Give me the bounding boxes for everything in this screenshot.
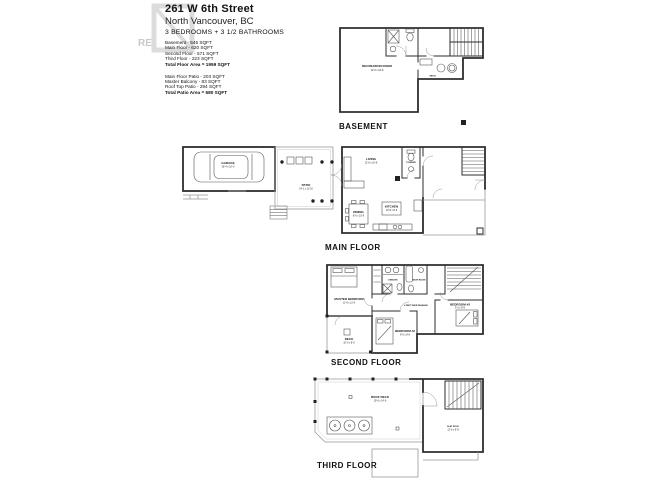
- sink: [390, 46, 396, 52]
- deck-post: [369, 351, 372, 354]
- bathtub: [406, 266, 413, 282]
- bed-crease: [459, 312, 470, 324]
- second-stairs: [447, 268, 481, 289]
- toilet: [408, 153, 414, 161]
- door-arc: [426, 48, 434, 56]
- flat-roof-dims: 12'-6 x 9'-8: [447, 430, 459, 432]
- master-label: MASTER BEDROOM: [334, 297, 364, 301]
- patio-dims: 14'-1 x 11'-10: [299, 189, 313, 191]
- patio-step-treads: [270, 210, 287, 216]
- patio-rail: [275, 147, 333, 209]
- rail-post: [372, 378, 375, 381]
- patio-chair: [287, 157, 294, 164]
- rail-post: [349, 378, 352, 381]
- lower-roof-edge: [423, 452, 478, 460]
- third-floor-name: THIRD FLOOR: [317, 461, 377, 470]
- main-floorplan: GARAGE 18'-4 x 10'-0 PATIO 14'-1 x 11'-1…: [180, 138, 505, 253]
- pillow: [333, 269, 342, 273]
- planter: [330, 420, 341, 431]
- planter-drain: [363, 425, 365, 427]
- ensuite-label: ENSUITE: [388, 280, 398, 282]
- bed-crease: [378, 326, 391, 340]
- patio-rail-inner: [278, 150, 331, 207]
- toilet: [409, 285, 414, 292]
- closet-shelves: [374, 270, 381, 282]
- vanity-sink: [385, 267, 391, 273]
- fridge: [414, 200, 422, 211]
- dining-table: [349, 204, 368, 224]
- rail-post: [314, 400, 317, 403]
- bedroom2-label: BEDROOM #2: [395, 329, 415, 333]
- second-floorplan: MASTER BEDROOM 11'-6 x 11'-0 ENSUITE BAT…: [320, 256, 500, 368]
- garage-label: GARAGE: [221, 161, 234, 165]
- bedroom3-dims: 9'-2 x 8'-8: [455, 308, 466, 310]
- roof-deck-rail: [315, 379, 423, 442]
- powder-label: POWDER: [406, 162, 416, 164]
- fireplace: [395, 176, 400, 181]
- pillow: [345, 269, 354, 273]
- toilet: [407, 33, 413, 41]
- patio-area-list: Main Floor Patio - 203 SQFT Master Balco…: [165, 74, 340, 96]
- mech-label: MECH.: [430, 76, 437, 78]
- rail-post: [314, 378, 317, 381]
- chair: [346, 209, 349, 214]
- shower-cross: [383, 284, 392, 293]
- watermark-letters: RE: [138, 38, 152, 49]
- sofa: [344, 157, 351, 181]
- lower-roof-outline: [372, 449, 418, 477]
- deck-table: [344, 329, 350, 335]
- patio-post: [320, 199, 323, 202]
- vanity-sink: [393, 267, 399, 273]
- bedroom3-label: BEDROOM #3: [450, 303, 470, 307]
- roof-deck-dims: 19'-0 x 14'-6: [374, 401, 387, 403]
- planter: [344, 420, 355, 431]
- third-floorplan: ROOF DECK 19'-0 x 14'-6 FLAT ROOF 12'-6 …: [300, 372, 500, 492]
- bedroom2-dims: 9'-0 x 8'-6: [400, 335, 411, 337]
- roof-deck-label: ROOF DECK: [371, 395, 390, 399]
- sink: [409, 167, 414, 172]
- patio-area-total: Total Patio Area = 580 SQFT: [165, 90, 340, 95]
- passage-label: 4 FEET WIDE PASSAGE: [404, 304, 428, 307]
- address-title: 261 W 6th Street: [165, 3, 340, 15]
- pillow: [474, 312, 478, 318]
- rail-post: [395, 378, 398, 381]
- planter-drain: [334, 425, 336, 427]
- patio-label: PATIO: [302, 183, 311, 187]
- toilet: [397, 284, 402, 291]
- bath-label: BATH ROOM: [413, 279, 426, 282]
- chair: [360, 225, 365, 228]
- master-dims: 11'-6 x 11'-0: [343, 303, 356, 305]
- chair: [352, 225, 357, 228]
- recreation-room-label: RECREATION ROOM: [362, 64, 392, 68]
- rail-post: [326, 378, 329, 381]
- kitchen-sink: [398, 225, 402, 229]
- deck-label: DECK: [345, 337, 354, 341]
- floorplan-page: RE 261 W 6th Street North Vancouver, BC …: [0, 0, 667, 500]
- floor-area-total: Total Floor Area = 1959 SQFT: [165, 62, 340, 67]
- pillow: [474, 319, 478, 325]
- roof-marker: [349, 396, 352, 399]
- main-stairs: [462, 151, 485, 172]
- stair-rail: [450, 267, 478, 292]
- toilet-tank: [407, 150, 415, 153]
- chair: [360, 201, 365, 204]
- washer-drum: [449, 65, 455, 71]
- door-arc: [396, 46, 406, 56]
- sink: [419, 268, 424, 273]
- patio-post: [280, 160, 283, 163]
- second-interior-walls: [372, 265, 483, 334]
- kitchen-sink: [393, 225, 397, 229]
- pillow: [378, 320, 384, 324]
- roof-marker: [396, 427, 399, 430]
- patio-chair: [305, 157, 312, 164]
- kitchen-dims: 10'-8 x 8'-6: [386, 210, 398, 212]
- main-floor-name: MAIN FLOOR: [325, 243, 381, 252]
- toilet-tank: [406, 29, 414, 33]
- deck-post: [326, 351, 329, 354]
- patio-post: [330, 199, 333, 202]
- kitchen-label: KITCHEN: [385, 205, 398, 209]
- living-dims: 12'-6 x 10'-8: [365, 163, 378, 165]
- patio-area-item: Roof Top Patio - 294 SQFT: [165, 84, 340, 89]
- city-subtitle: North Vancouver, BC: [165, 16, 340, 27]
- stair-rail: [447, 383, 479, 407]
- patio-post: [330, 160, 333, 163]
- sofa: [344, 181, 364, 188]
- planter-drain: [349, 425, 351, 427]
- patio-post: [320, 160, 323, 163]
- rooms-summary: 3 BEDROOMS + 3 1/2 BATHROOMS: [165, 29, 340, 36]
- listing-header: 261 W 6th Street North Vancouver, BC 3 B…: [165, 3, 340, 95]
- mech-counter: [420, 59, 432, 65]
- door-arc: [407, 170, 415, 178]
- planter: [359, 420, 370, 431]
- pillow: [385, 320, 391, 324]
- hall-door-arc: [433, 189, 442, 198]
- basement-interior-walls: [386, 28, 483, 79]
- basement-floor-name: BASEMENT: [339, 122, 388, 131]
- dining-dims: 8'-0 x 10'-6: [353, 216, 365, 218]
- survey-marker: [461, 120, 466, 125]
- chair: [352, 201, 357, 204]
- rear-deck-rail: [423, 189, 485, 235]
- patio-post: [311, 199, 314, 202]
- door-arc: [423, 392, 437, 406]
- rail-post: [314, 420, 317, 423]
- recreation-room-dims: 12'-6 x 19'-8: [371, 70, 384, 72]
- flat-roof-label: FLAT ROOF: [447, 425, 459, 428]
- basement-floorplan: RECREATION ROOM 12'-6 x 19'-8 MECH. BASE…: [330, 8, 510, 138]
- floor-area-list: Basement - 545 SQFT Main Floor - 620 SQF…: [165, 40, 340, 67]
- living-label: LIVING: [366, 157, 377, 161]
- deck-rail: [327, 316, 372, 353]
- floor-area-item: Third Floor - 223 SQFT: [165, 56, 340, 61]
- door-arc: [423, 156, 433, 166]
- master-bed: [331, 267, 357, 287]
- deck-post: [477, 228, 483, 234]
- patio-chair: [296, 157, 303, 164]
- stove: [379, 224, 387, 230]
- entry-door-arc: [475, 180, 485, 190]
- second-floor-name: SECOND FLOOR: [331, 358, 401, 367]
- garage-dims: 18'-4 x 10'-0: [222, 167, 235, 169]
- third-outer-walls: [410, 379, 483, 452]
- deck-dims: 10'-0 x 8'-0: [343, 343, 355, 345]
- walkway: [183, 195, 208, 199]
- deck-post: [326, 315, 329, 318]
- hot-water-tank: [437, 64, 445, 72]
- dining-label: DINING: [353, 210, 364, 214]
- shower-cross: [388, 30, 399, 43]
- chair: [346, 217, 349, 222]
